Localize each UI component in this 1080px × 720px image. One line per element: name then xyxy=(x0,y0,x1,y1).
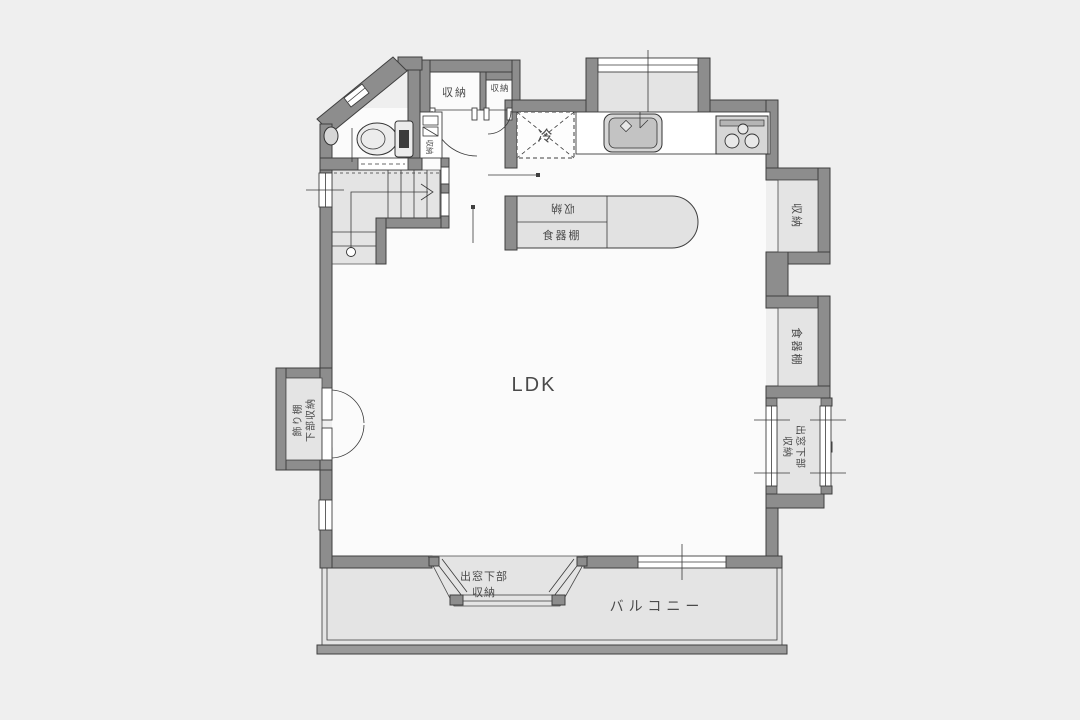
refrigerator-space: 冷 xyxy=(517,112,574,158)
shelf-label-2: 下部収納 xyxy=(304,398,317,442)
bay-right-label-2: 収納 xyxy=(781,436,794,458)
bay-bottom-label-2: 収納 xyxy=(472,586,496,599)
bay-right-label-1: 出窓下部 xyxy=(794,425,807,469)
closet-small-label: 収納 xyxy=(490,83,509,93)
closet-large-label: 収納 xyxy=(442,86,468,99)
slim-closet: 収納 xyxy=(420,112,442,158)
floor-plan-page: 収納 収納 収納 xyxy=(0,0,1080,720)
floor-plan-canvas: 収納 収納 収納 xyxy=(0,0,1080,720)
shelf-door-lower xyxy=(322,428,332,460)
closet-slim-label: 収納 xyxy=(425,140,435,155)
wall-storage-label: 収納 xyxy=(790,203,803,229)
stair-newel-post xyxy=(347,248,356,257)
wall-cupboard-label: 食器棚 xyxy=(790,328,804,367)
bay-bottom-label-1: 出窓下部 xyxy=(460,569,508,583)
room-label-ldk: LDK xyxy=(512,374,557,396)
fridge-label: 冷 xyxy=(537,128,552,145)
balcony-label: バルコニー xyxy=(610,598,705,614)
island-storage-label: 収納 xyxy=(549,202,575,215)
toilet-lid-icon xyxy=(399,130,409,148)
balcony-rail-outer xyxy=(317,645,787,654)
hand-basin-icon xyxy=(324,127,338,145)
stove-icon xyxy=(716,116,768,154)
shelf-door-upper xyxy=(322,388,332,420)
sink-icon xyxy=(604,112,662,152)
island-cupboard-label: 食器棚 xyxy=(543,228,582,242)
island-counter: 収納 食器棚 xyxy=(517,196,698,248)
toilet-bowl-icon xyxy=(357,123,397,155)
shelf-label-1: 飾り棚 xyxy=(291,404,304,437)
